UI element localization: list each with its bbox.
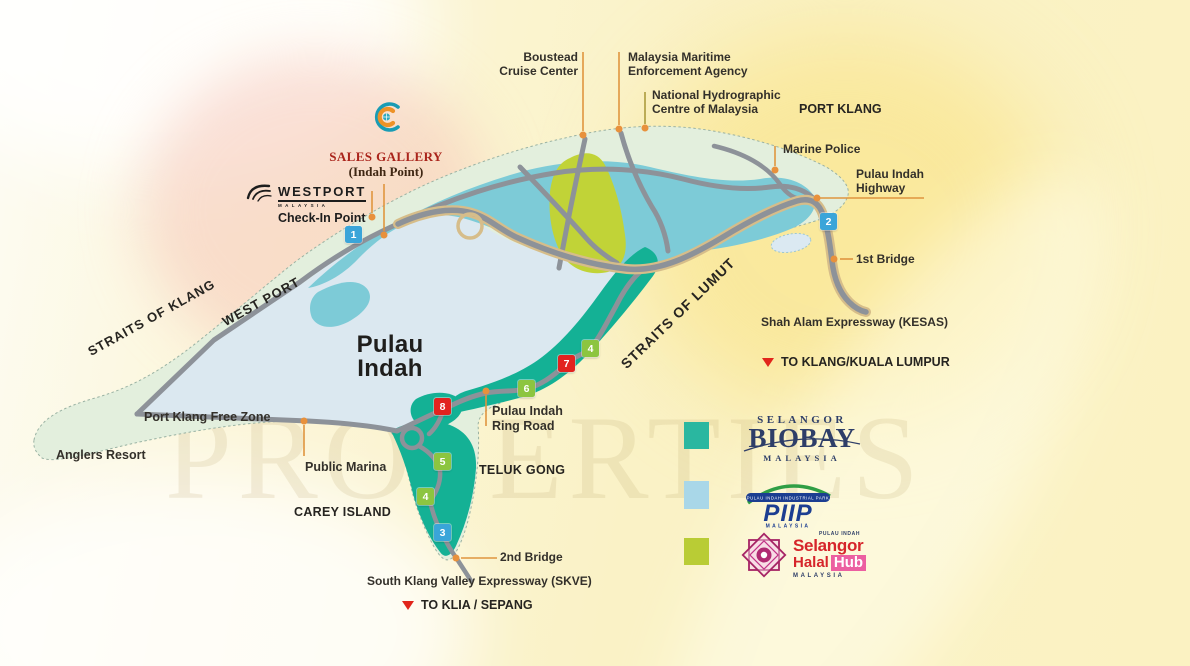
label-skve: South Klang Valley Expressway (SKVE) [367,574,592,588]
legend-logo-piip: PULAU INDAH INDUSTRIAL PARK PIIP MALAYSI… [742,477,834,534]
label-maritime-agency: Malaysia Maritime Enforcement Agency [628,50,748,78]
triangle-down-icon [762,358,774,367]
label-teluk-gong: TELUK GONG [479,463,565,478]
label-ring-road: Pulau Indah Ring Road [492,404,563,434]
label-line: Cruise Center [468,64,578,78]
map-marker-3: 3 [434,524,451,541]
legend-swatch-halal [684,538,709,565]
westport-text-block: WESTPORT MALAYSIA Check-In Point [278,183,366,225]
label-check-in-point: Check-In Point [278,211,366,225]
map-marker-2: 2 [820,213,837,230]
label-indah-point: (Indah Point) [325,164,447,180]
label-kesas: Shah Alam Expressway (KESAS) [761,315,948,329]
label-marine-police: Marine Police [783,142,860,156]
label-line: Boustead [468,50,578,64]
westport-malaysia: MALAYSIA [278,203,366,208]
legend-logo-biobay: SELANGOR BIOBAY MALAYSIA [738,414,866,463]
legend-logo-halal-hub: PULAU INDAH Selangor Halal Hub MALAYSIA [740,531,866,579]
label-port-klang: PORT KLANG [799,102,882,117]
direction-to-klia: TO KLIA / SEPANG [402,598,533,612]
halal-hub-text-block: PULAU INDAH Selangor Halal Hub MALAYSIA [793,531,866,579]
map-marker-4: 4 [417,488,434,505]
label-2nd-bridge: 2nd Bridge [500,550,563,564]
map-canvas: PROPERTIES [0,0,1190,666]
halal-selangor-text: Selangor [793,537,866,554]
label-line: National Hydrographic [652,88,781,102]
label-1st-bridge: 1st Bridge [856,252,915,266]
halal-halal-text: Halal [793,555,829,570]
legend-swatch-piip [684,481,709,509]
biobay-wordmark: BIOBAY [738,426,866,452]
label-line: Ring Road [492,419,563,434]
label-line: Centre of Malaysia [652,102,781,116]
label-line: Highway [856,181,924,195]
triangle-down-icon [402,601,414,610]
label-pulau-indah-highway: Pulau Indah Highway [856,167,924,195]
westport-wordmark: WESTPORT [278,184,366,202]
label-boustead-cruise-center: Boustead Cruise Center [468,50,578,78]
map-marker-5: 5 [434,453,451,470]
label-public-marina: Public Marina [305,460,386,475]
direction-text: TO KLANG/KUALA LUMPUR [781,355,950,369]
halal-hub-text: Hub [831,555,866,571]
map-marker-1: 1 [345,226,362,243]
westport-wave-icon [245,183,272,204]
island-title: Pulau Indah [325,333,455,381]
label-anglers-resort: Anglers Resort [56,448,146,463]
label-carey-island: CAREY ISLAND [294,505,391,520]
map-marker-6: 6 [518,380,535,397]
label-hydrographic-centre: National Hydrographic Centre of Malaysia [652,88,781,116]
legend-swatch-biobay [684,422,709,449]
map-graphic [0,0,1190,666]
piip-malaysia-text: MALAYSIA [766,524,811,530]
direction-to-klang: TO KLANG/KUALA LUMPUR [762,355,950,369]
biobay-malaysia-text: MALAYSIA [738,453,866,463]
label-line: Pulau Indah [856,167,924,181]
map-marker-4b: 4 [582,340,599,357]
label-line: Enforcement Agency [628,64,748,78]
sales-gallery-logo-icon [369,96,403,142]
label-port-klang-free-zone: Port Klang Free Zone [144,410,270,425]
label-sales-gallery: SALES GALLERY [325,149,447,165]
piip-logo-icon: PULAU INDAH INDUSTRIAL PARK PIIP MALAYSI… [742,477,834,529]
direction-text: TO KLIA / SEPANG [421,598,533,612]
label-line: Malaysia Maritime [628,50,748,64]
map-marker-8: 8 [434,398,451,415]
map-marker-7: 7 [558,355,575,372]
halal-hub-star-icon [740,531,788,579]
halal-malaysia-text: MALAYSIA [793,573,866,579]
westport-check-in-block: WESTPORT MALAYSIA Check-In Point [245,183,366,225]
label-line: Pulau Indah [492,404,563,419]
